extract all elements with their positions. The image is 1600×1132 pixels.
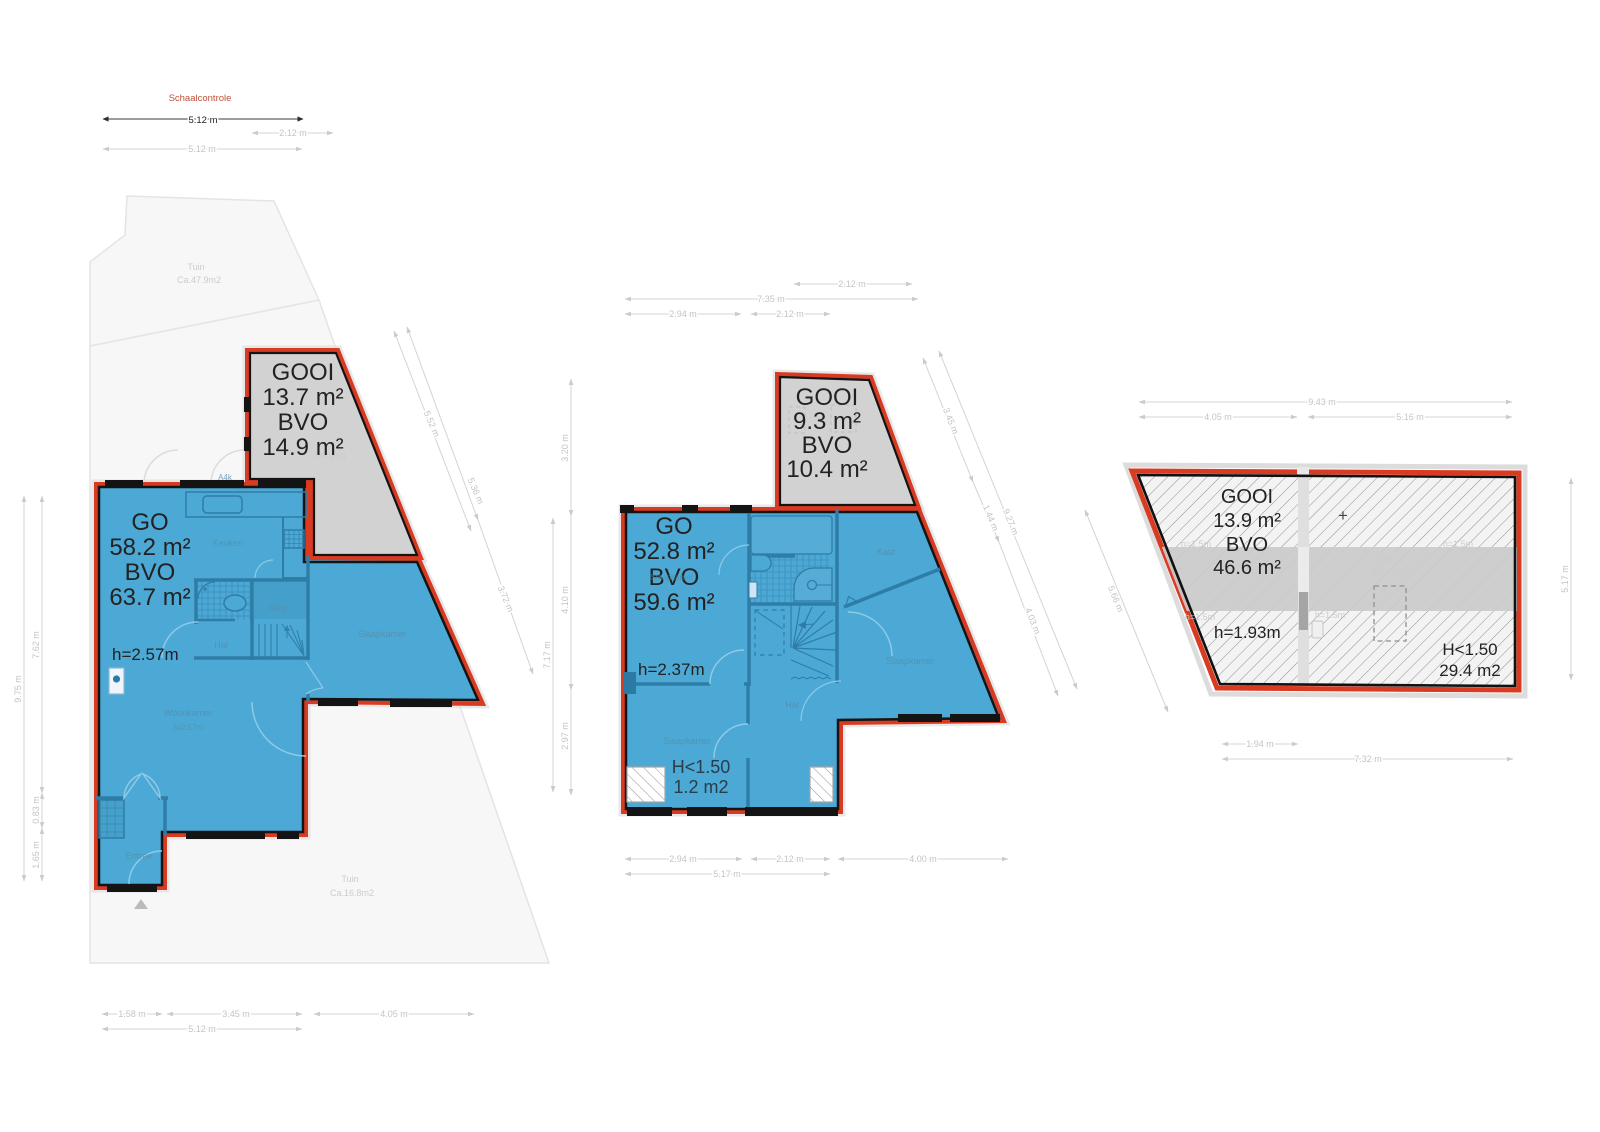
svg-text:h=2.57m: h=2.57m: [112, 645, 179, 664]
svg-text:3.20 m: 3.20 m: [560, 434, 570, 462]
svg-text:2.12 m: 2.12 m: [776, 854, 804, 864]
svg-text:Tuin: Tuin: [341, 874, 358, 884]
svg-text:4.10 m: 4.10 m: [560, 586, 570, 614]
svg-text:9.43 m: 9.43 m: [1308, 397, 1336, 407]
svg-text:BVO: BVO: [802, 432, 853, 459]
svg-text:1.65 m: 1.65 m: [31, 841, 41, 869]
svg-text:5.17 m: 5.17 m: [713, 869, 741, 879]
svg-text:Ca.47.9m2: Ca.47.9m2: [177, 275, 221, 285]
svg-text:9.3 m²: 9.3 m²: [793, 408, 861, 435]
svg-text:Kast: Kast: [269, 603, 288, 613]
svg-text:BVO: BVO: [278, 409, 329, 436]
svg-text:5.12 m: 5.12 m: [188, 144, 216, 154]
svg-text:13.7 m²: 13.7 m²: [262, 384, 343, 411]
svg-text:59.6 m²: 59.6 m²: [633, 589, 714, 616]
svg-text:1.2 m2: 1.2 m2: [673, 777, 728, 797]
svg-text:63.7 m²: 63.7 m²: [109, 584, 190, 611]
svg-text:h=1.5m: h=1.5m: [1181, 539, 1211, 549]
svg-text:2.12 m: 2.12 m: [838, 279, 866, 289]
svg-text:h=1.5m: h=1.5m: [1315, 610, 1345, 620]
svg-text:H<1.50: H<1.50: [672, 757, 731, 777]
svg-text:BVO: BVO: [1226, 534, 1268, 556]
svg-text:h=1.5m: h=1.5m: [1443, 539, 1473, 549]
svg-text:GOOI: GOOI: [1221, 486, 1273, 508]
svg-text:4.00 m: 4.00 m: [909, 854, 937, 864]
svg-text:5.12 m: 5.12 m: [188, 1024, 216, 1034]
svg-text:Entree: Entree: [126, 851, 153, 861]
svg-text:Zolder: Zolder: [1377, 555, 1403, 565]
svg-text:2.97 m: 2.97 m: [560, 722, 570, 750]
svg-text:14.9 m²: 14.9 m²: [262, 434, 343, 461]
svg-text:GOOI: GOOI: [272, 359, 335, 386]
svg-text:7.32 m: 7.32 m: [1354, 754, 1382, 764]
svg-text:Kast: Kast: [877, 547, 896, 557]
svg-text:GOOI: GOOI: [796, 384, 859, 411]
svg-text:1.58 m: 1.58 m: [118, 1009, 146, 1019]
svg-text:2.94 m: 2.94 m: [669, 309, 697, 319]
svg-text:2.94 m: 2.94 m: [669, 854, 697, 864]
svg-text:46.6 m²: 46.6 m²: [1213, 557, 1281, 579]
svg-text:4.05 m: 4.05 m: [1204, 412, 1232, 422]
svg-text:h=1.5m: h=1.5m: [1185, 612, 1215, 622]
svg-text:Keuken: Keuken: [213, 538, 244, 548]
svg-text:GO: GO: [131, 509, 168, 536]
svg-text:Slaapkamer: Slaapkamer: [358, 629, 406, 639]
svg-text:H<1.50: H<1.50: [1442, 640, 1497, 659]
svg-text:BVO: BVO: [125, 559, 176, 586]
svg-text:GO: GO: [655, 513, 692, 540]
svg-text:Slaapkamer: Slaapkamer: [663, 736, 711, 746]
svg-text:10.4 m²: 10.4 m²: [786, 456, 867, 483]
svg-text:3x2.57m: 3x2.57m: [173, 723, 204, 732]
svg-text:Tuin: Tuin: [187, 262, 204, 272]
svg-text:3.45 m: 3.45 m: [222, 1009, 250, 1019]
svg-text:2.12 m: 2.12 m: [776, 309, 804, 319]
svg-text:7.35 m: 7.35 m: [757, 294, 785, 304]
svg-text:52.8 m²: 52.8 m²: [633, 538, 714, 565]
svg-text:7.17 m: 7.17 m: [542, 641, 552, 669]
svg-text:5.16 m: 5.16 m: [1396, 412, 1424, 422]
svg-text:5.17 m: 5.17 m: [1560, 565, 1570, 593]
svg-text:58.2 m²: 58.2 m²: [109, 534, 190, 561]
svg-text:9.75 m: 9.75 m: [13, 675, 23, 703]
svg-text:13.9 m²: 13.9 m²: [1213, 510, 1281, 532]
svg-text:Slaapkamer: Slaapkamer: [886, 656, 934, 666]
svg-text:Slaapkamer: Slaapkamer: [651, 573, 694, 582]
svg-text:h=2.37m: h=2.37m: [638, 660, 705, 679]
svg-text:1.94 m: 1.94 m: [1246, 739, 1274, 749]
svg-text:29.4 m2: 29.4 m2: [1439, 661, 1500, 680]
svg-text:0.83 m: 0.83 m: [31, 796, 41, 824]
svg-text:2.12 m: 2.12 m: [279, 128, 307, 138]
svg-text:Woonkamer: Woonkamer: [164, 708, 212, 718]
svg-text:+: +: [1338, 506, 1348, 525]
svg-text:4.05 m: 4.05 m: [380, 1009, 408, 1019]
svg-text:Schaalcontrole: Schaalcontrole: [169, 93, 232, 104]
svg-text:h=1.93m: h=1.93m: [1214, 623, 1281, 642]
svg-text:h=190m: h=190m: [1374, 567, 1407, 577]
svg-text:Hal: Hal: [214, 640, 228, 650]
svg-text:7.62 m: 7.62 m: [31, 631, 41, 659]
svg-text:Hal: Hal: [785, 700, 799, 710]
svg-text:Ca.16.8m2: Ca.16.8m2: [330, 888, 374, 898]
svg-text:5.12 m: 5.12 m: [188, 115, 217, 126]
svg-text:A4k: A4k: [218, 473, 233, 482]
